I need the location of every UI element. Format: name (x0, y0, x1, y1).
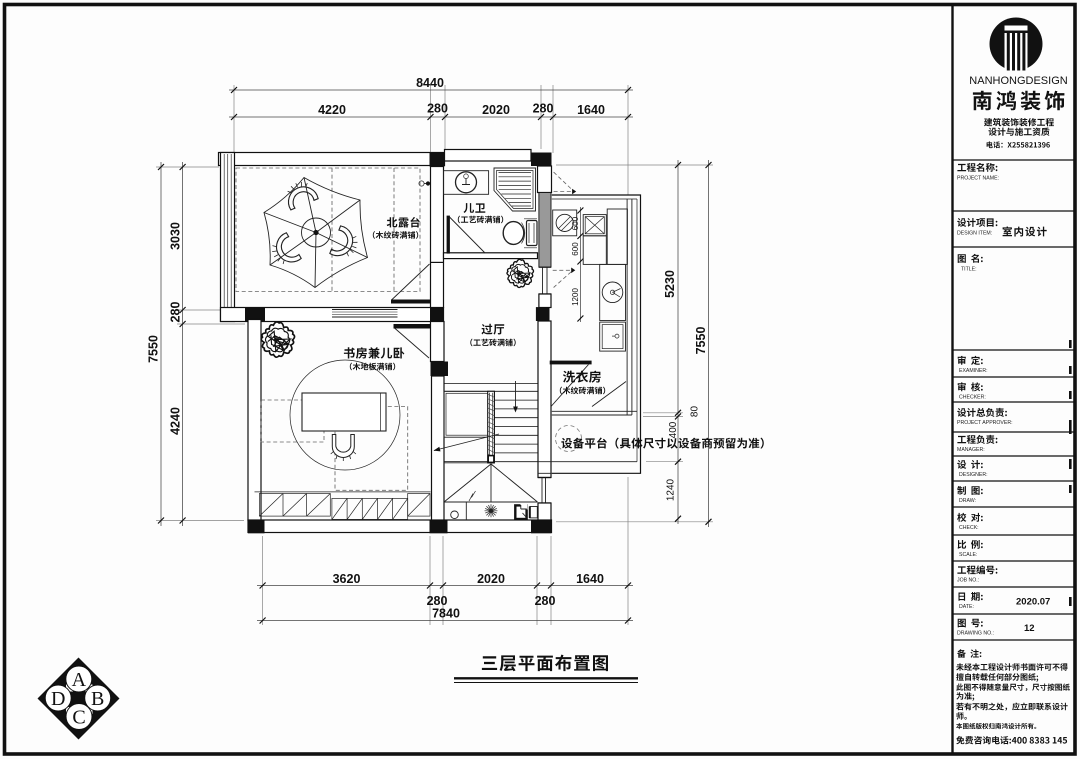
svg-text:NANHONGDESIGN: NANHONGDESIGN (969, 75, 1067, 87)
svg-text:CHECK:: CHECK: (959, 525, 979, 531)
svg-text:DRAW:: DRAW: (959, 498, 976, 504)
svg-text:CHECKER:: CHECKER: (959, 395, 986, 401)
svg-text:DESIGNER:: DESIGNER: (959, 472, 988, 478)
svg-text:7840: 7840 (432, 607, 460, 621)
svg-text:2020: 2020 (482, 103, 510, 117)
svg-text:PROJECT APPROVER:: PROJECT APPROVER: (957, 420, 1013, 426)
svg-text:1640: 1640 (576, 572, 604, 586)
svg-text:400: 400 (668, 421, 679, 438)
svg-text:8440: 8440 (416, 76, 444, 90)
svg-text:DATE:: DATE: (959, 604, 974, 610)
svg-text:C: C (72, 707, 85, 729)
svg-text:3620: 3620 (333, 572, 361, 586)
svg-text:1200: 1200 (571, 288, 580, 306)
svg-text:1640: 1640 (577, 103, 605, 117)
svg-text:5230: 5230 (663, 270, 677, 298)
svg-text:280: 280 (535, 594, 556, 608)
svg-text:1240: 1240 (666, 478, 677, 501)
svg-text:2020: 2020 (477, 572, 505, 586)
svg-text:4220: 4220 (318, 103, 346, 117)
svg-text:12: 12 (1024, 623, 1035, 634)
svg-text:DESIGN ITEM:: DESIGN ITEM: (957, 231, 992, 237)
svg-text:B: B (91, 688, 104, 710)
svg-text:280: 280 (169, 302, 183, 323)
svg-text:TITLE:: TITLE: (961, 267, 977, 273)
svg-text:4240: 4240 (169, 407, 183, 435)
svg-text:3030: 3030 (169, 222, 183, 250)
svg-text:EXAMINER:: EXAMINER: (959, 368, 988, 374)
svg-text:A: A (72, 669, 87, 691)
svg-text:7550: 7550 (694, 327, 708, 355)
svg-text:SCALE:: SCALE: (959, 552, 977, 558)
svg-text:80: 80 (690, 406, 701, 418)
svg-text:280: 280 (533, 102, 554, 116)
svg-text:D: D (51, 688, 65, 710)
svg-text:JOB NO.:: JOB NO.: (957, 578, 979, 584)
svg-text:280: 280 (427, 102, 448, 116)
svg-text:2020.07: 2020.07 (1016, 597, 1050, 608)
svg-text:PROJECT NAME:: PROJECT NAME: (957, 176, 999, 182)
svg-text:7550: 7550 (147, 335, 161, 363)
svg-text:DRAWING NO.:: DRAWING NO.: (957, 631, 994, 637)
svg-text:600: 600 (571, 242, 580, 256)
svg-text:MANAGER:: MANAGER: (957, 447, 985, 453)
